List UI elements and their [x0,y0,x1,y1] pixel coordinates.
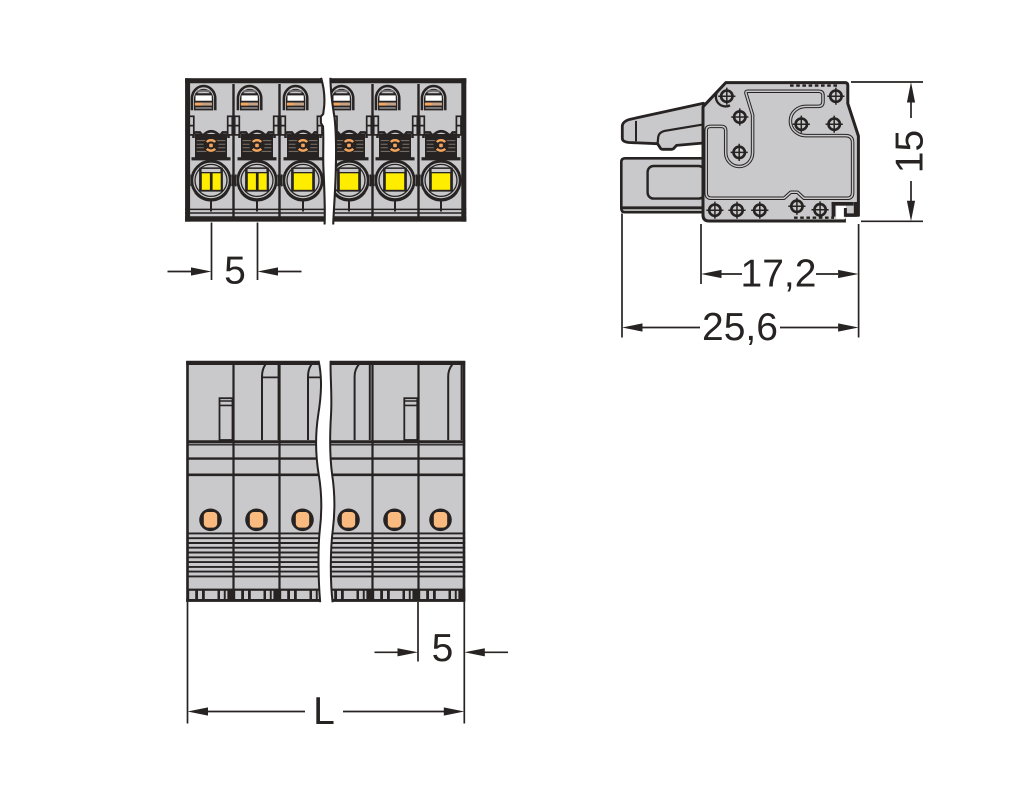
svg-text:L: L [313,690,335,733]
svg-text:25,6: 25,6 [702,306,778,349]
svg-text:5: 5 [224,250,246,293]
svg-text:5: 5 [432,627,454,670]
svg-text:15: 15 [889,130,932,173]
svg-text:17,2: 17,2 [741,253,817,296]
